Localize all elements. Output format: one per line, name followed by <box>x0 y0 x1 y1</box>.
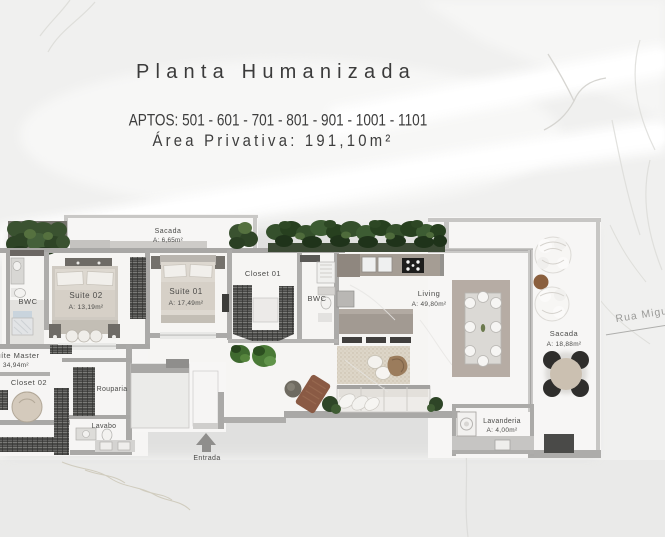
svg-text:Entrada: Entrada <box>193 455 220 462</box>
svg-text:A: 18,88m²: A: 18,88m² <box>547 341 582 348</box>
svg-text:A: 49,80m²: A: 49,80m² <box>412 301 447 308</box>
svg-text:A: 13,19m²: A: 13,19m² <box>69 304 104 311</box>
svg-text:Lavabo: Lavabo <box>92 423 117 430</box>
svg-text:Closet 02: Closet 02 <box>11 378 47 387</box>
svg-text:A: 34,94m²: A: 34,94m² <box>0 362 29 369</box>
svg-text:Sacada: Sacada <box>550 329 579 338</box>
svg-text:Lavanderia: Lavanderia <box>483 418 521 425</box>
svg-text:BWC: BWC <box>308 294 327 303</box>
svg-text:A: 4,00m²: A: 4,00m² <box>487 427 518 434</box>
svg-text:Planta Humanizada: Planta Humanizada <box>136 61 416 83</box>
svg-text:Sacada: Sacada <box>155 228 182 235</box>
svg-text:Área Privativa: 191,10m²: Área Privativa: 191,10m² <box>152 130 393 150</box>
svg-text:A: 6,65m²: A: 6,65m² <box>153 237 183 244</box>
svg-text:Suite 01: Suite 01 <box>169 287 202 296</box>
svg-text:Closet 01: Closet 01 <box>245 269 281 278</box>
svg-text:Suite 02: Suite 02 <box>69 291 102 300</box>
svg-text:A: 17,49m²: A: 17,49m² <box>169 300 204 307</box>
svg-text:APTOS: 501 - 601 - 701 - 801 -: APTOS: 501 - 601 - 701 - 801 - 901 - 100… <box>129 111 428 130</box>
svg-text:Suíte Master: Suíte Master <box>0 351 40 360</box>
svg-text:Rouparia: Rouparia <box>97 386 128 393</box>
svg-text:BWC: BWC <box>19 297 38 306</box>
svg-text:Living: Living <box>418 289 441 298</box>
